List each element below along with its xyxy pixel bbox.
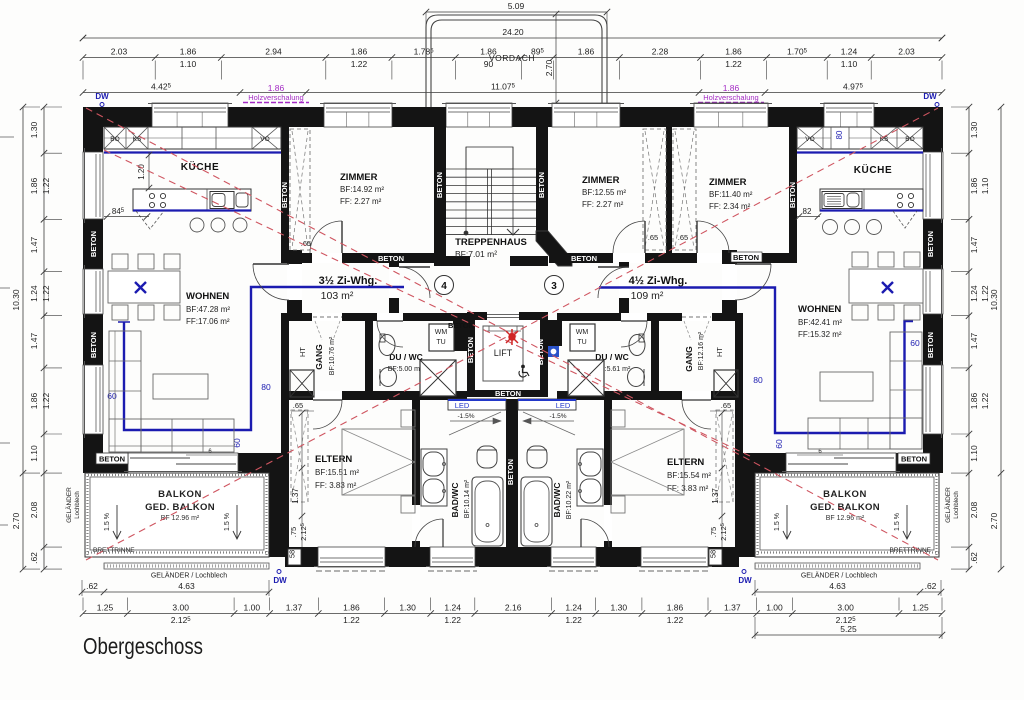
svg-text:HT: HT bbox=[715, 347, 724, 357]
svg-text:1.24: 1.24 bbox=[841, 47, 858, 57]
svg-text:BETON: BETON bbox=[571, 254, 597, 263]
svg-text:2.03: 2.03 bbox=[111, 47, 128, 57]
svg-text:1.22: 1.22 bbox=[444, 615, 461, 625]
svg-text:TU: TU bbox=[577, 339, 586, 346]
svg-text:1.37: 1.37 bbox=[724, 603, 741, 613]
svg-text:Obergeschoss: Obergeschoss bbox=[83, 633, 203, 659]
svg-text:BETON: BETON bbox=[926, 332, 935, 358]
svg-text:4: 4 bbox=[441, 281, 447, 292]
svg-text:1.86: 1.86 bbox=[29, 177, 39, 194]
svg-text:BAD/WC: BAD/WC bbox=[552, 483, 562, 518]
svg-text:2.08: 2.08 bbox=[969, 501, 979, 518]
svg-text:BETON: BETON bbox=[280, 182, 289, 208]
svg-text:1.24: 1.24 bbox=[444, 603, 461, 613]
svg-text:BF:42.41 m²: BF:42.41 m² bbox=[798, 318, 842, 327]
svg-text:BETON: BETON bbox=[495, 389, 521, 398]
svg-text:ZIMMER: ZIMMER bbox=[582, 175, 620, 186]
svg-text:5.09: 5.09 bbox=[508, 1, 525, 11]
svg-text:103 m²: 103 m² bbox=[321, 290, 354, 302]
svg-text:HT: HT bbox=[298, 347, 307, 357]
svg-text:BETON: BETON bbox=[99, 455, 125, 464]
svg-text:-1.5%: -1.5% bbox=[550, 413, 567, 420]
svg-text:BALKON: BALKON bbox=[823, 489, 867, 500]
svg-text:.65: .65 bbox=[721, 401, 731, 410]
svg-text:1.10: 1.10 bbox=[980, 177, 990, 194]
svg-text:1.5 %: 1.5 % bbox=[104, 513, 111, 531]
svg-text:GELÄNDER: GELÄNDER bbox=[944, 487, 952, 523]
svg-text:VORDACH: VORDACH bbox=[489, 53, 535, 63]
svg-text:BETON: BETON bbox=[89, 231, 98, 257]
svg-text:Lochblech: Lochblech bbox=[954, 491, 960, 518]
svg-text:1.47: 1.47 bbox=[29, 236, 39, 253]
svg-text:BETON: BETON bbox=[926, 231, 935, 257]
svg-text:BF:10.76 m²: BF:10.76 m² bbox=[329, 336, 336, 375]
svg-text:BO: BO bbox=[110, 136, 119, 143]
svg-text:1.86: 1.86 bbox=[343, 603, 360, 613]
svg-text:BF:14.92 m²: BF:14.92 m² bbox=[340, 185, 384, 194]
svg-text:3: 3 bbox=[551, 281, 557, 292]
svg-text:ZIMMER: ZIMMER bbox=[340, 172, 378, 183]
svg-text:1.47: 1.47 bbox=[969, 332, 979, 349]
svg-text:DU / WC: DU / WC bbox=[389, 352, 423, 362]
svg-text:BETON: BETON bbox=[506, 459, 515, 485]
svg-text:.75: .75 bbox=[289, 527, 298, 537]
svg-text:1.00: 1.00 bbox=[244, 603, 261, 613]
svg-text:1.22: 1.22 bbox=[565, 615, 582, 625]
svg-text:109 m²: 109 m² bbox=[631, 290, 664, 302]
svg-text:3.00: 3.00 bbox=[837, 603, 854, 613]
svg-text:2.16: 2.16 bbox=[505, 603, 522, 613]
svg-text:BETON: BETON bbox=[536, 339, 545, 365]
svg-text:BF:7.01 m²: BF:7.01 m² bbox=[455, 249, 497, 259]
svg-text:BF:47.28 m²: BF:47.28 m² bbox=[186, 305, 230, 314]
svg-text:1.24: 1.24 bbox=[565, 603, 582, 613]
svg-text:1.25: 1.25 bbox=[912, 603, 929, 613]
svg-text:1.37: 1.37 bbox=[291, 488, 300, 504]
svg-text:1.22: 1.22 bbox=[351, 59, 368, 69]
svg-text:FF:15.32 m²: FF:15.32 m² bbox=[798, 330, 842, 339]
svg-text:4.63: 4.63 bbox=[829, 581, 846, 591]
svg-text:1.37: 1.37 bbox=[711, 488, 720, 504]
svg-text:1.86: 1.86 bbox=[969, 392, 979, 409]
svg-text:BF:10.14 m²: BF:10.14 m² bbox=[464, 479, 471, 518]
svg-text:GELÄNDER: GELÄNDER bbox=[65, 487, 73, 523]
svg-text:3½ Zi-Whg.: 3½ Zi-Whg. bbox=[319, 275, 378, 287]
svg-text:Holzverschalung: Holzverschalung bbox=[703, 93, 758, 102]
svg-text:1.22: 1.22 bbox=[725, 59, 742, 69]
svg-text:BETON: BETON bbox=[537, 172, 546, 198]
svg-text:80: 80 bbox=[753, 375, 763, 385]
svg-text:WM: WM bbox=[435, 329, 448, 336]
svg-text:.62: .62 bbox=[925, 581, 937, 591]
svg-text:1.86: 1.86 bbox=[578, 47, 595, 57]
svg-text:1.5 %: 1.5 % bbox=[894, 513, 901, 531]
svg-text:-1.5%: -1.5% bbox=[458, 413, 475, 420]
svg-text:GANG: GANG bbox=[684, 346, 694, 372]
svg-text:3.00: 3.00 bbox=[172, 603, 189, 613]
svg-text:60: 60 bbox=[774, 439, 784, 449]
svg-text:BF:15.54 m²: BF:15.54 m² bbox=[667, 471, 711, 480]
svg-text:1.00: 1.00 bbox=[766, 603, 783, 613]
svg-text:1.10: 1.10 bbox=[969, 445, 979, 462]
svg-text:GANG: GANG bbox=[314, 344, 324, 370]
svg-text:BF 12.96 m²: BF 12.96 m² bbox=[161, 515, 200, 522]
svg-text:1.86: 1.86 bbox=[180, 47, 197, 57]
svg-text:1.86: 1.86 bbox=[351, 47, 368, 57]
svg-text:1.10: 1.10 bbox=[180, 59, 197, 69]
svg-text:BAD/WC: BAD/WC bbox=[450, 483, 460, 518]
svg-text:GELÄNDER / Lochblech: GELÄNDER / Lochblech bbox=[151, 572, 227, 580]
svg-text:1.22: 1.22 bbox=[41, 392, 51, 409]
svg-text:1.5 %: 1.5 % bbox=[774, 513, 781, 531]
svg-text:FF: 2.27 m²: FF: 2.27 m² bbox=[582, 200, 624, 209]
svg-text:.62: .62 bbox=[29, 552, 39, 564]
svg-text:BETON: BETON bbox=[901, 455, 927, 464]
svg-text:1.37: 1.37 bbox=[286, 603, 303, 613]
svg-text:2.28: 2.28 bbox=[652, 47, 669, 57]
svg-text:BETON: BETON bbox=[378, 254, 404, 263]
svg-text:WM: WM bbox=[576, 329, 589, 336]
svg-text:1.22: 1.22 bbox=[41, 285, 51, 302]
svg-text:FF: 2.34 m²: FF: 2.34 m² bbox=[709, 202, 751, 211]
svg-text:BETON: BETON bbox=[466, 337, 475, 363]
svg-text:BF:15.51 m²: BF:15.51 m² bbox=[315, 468, 359, 477]
svg-text:.65: .65 bbox=[648, 233, 658, 242]
svg-text:BETON: BETON bbox=[788, 182, 797, 208]
svg-text:80: 80 bbox=[261, 382, 271, 392]
svg-text:BF:11.40 m²: BF:11.40 m² bbox=[709, 190, 753, 199]
svg-text:1.30: 1.30 bbox=[969, 121, 979, 138]
svg-text:BETON: BETON bbox=[733, 253, 759, 262]
svg-text:Lochblech: Lochblech bbox=[75, 491, 81, 518]
svg-text:VO: VO bbox=[805, 136, 814, 143]
svg-text:FF: 3.83 m²: FF: 3.83 m² bbox=[667, 484, 709, 493]
svg-text:1.47: 1.47 bbox=[29, 332, 39, 349]
svg-text:4.63: 4.63 bbox=[178, 581, 195, 591]
svg-text:BF:12.16 m²: BF:12.16 m² bbox=[698, 331, 705, 370]
svg-text:1.86: 1.86 bbox=[969, 177, 979, 194]
svg-text:.62: .62 bbox=[969, 552, 979, 564]
svg-text:ELTERN: ELTERN bbox=[667, 457, 704, 468]
svg-text:2.08: 2.08 bbox=[29, 501, 39, 518]
svg-text:VO: VO bbox=[260, 136, 269, 143]
svg-text:WOHNEN: WOHNEN bbox=[186, 291, 229, 302]
svg-text:GED. BALKON: GED. BALKON bbox=[810, 502, 880, 513]
svg-text:2.70: 2.70 bbox=[11, 512, 21, 529]
svg-text:10.30: 10.30 bbox=[11, 289, 21, 311]
svg-text:58: 58 bbox=[288, 550, 297, 558]
svg-text:1.24: 1.24 bbox=[969, 285, 979, 302]
svg-text:1.5 %: 1.5 % bbox=[224, 513, 231, 531]
svg-text:Holzverschalung: Holzverschalung bbox=[248, 93, 303, 102]
svg-text:1.10: 1.10 bbox=[841, 59, 858, 69]
svg-text:DW: DW bbox=[738, 576, 752, 585]
svg-text:1.86: 1.86 bbox=[29, 392, 39, 409]
svg-text:80: 80 bbox=[835, 130, 844, 139]
svg-text:BETON: BETON bbox=[89, 332, 98, 358]
svg-text:1.22: 1.22 bbox=[980, 392, 990, 409]
svg-text:24.20: 24.20 bbox=[502, 27, 524, 37]
svg-text:1.47: 1.47 bbox=[969, 236, 979, 253]
svg-text:10.30: 10.30 bbox=[989, 289, 999, 311]
svg-text:60: 60 bbox=[910, 338, 920, 348]
svg-text:58: 58 bbox=[709, 550, 718, 558]
svg-text:2.70: 2.70 bbox=[989, 512, 999, 529]
svg-text:KÜCHE: KÜCHE bbox=[854, 163, 893, 176]
svg-text:4½ Zi-Whg.: 4½ Zi-Whg. bbox=[629, 275, 688, 287]
svg-text:1.86: 1.86 bbox=[667, 603, 684, 613]
svg-text:1.22: 1.22 bbox=[41, 177, 51, 194]
svg-text:FF:17.06 m²: FF:17.06 m² bbox=[186, 317, 230, 326]
svg-text:DW: DW bbox=[923, 92, 937, 101]
svg-text:GED. BALKON: GED. BALKON bbox=[145, 502, 215, 513]
svg-text:1.86: 1.86 bbox=[268, 83, 285, 93]
svg-text:2.94: 2.94 bbox=[265, 47, 282, 57]
svg-text:2.70: 2.70 bbox=[544, 59, 554, 76]
svg-text:.75: .75 bbox=[709, 527, 718, 537]
svg-text:BF:12.55 m²: BF:12.55 m² bbox=[582, 188, 626, 197]
svg-text:WOHNEN: WOHNEN bbox=[798, 304, 841, 315]
svg-text:1.22: 1.22 bbox=[343, 615, 360, 625]
svg-text:GELÄNDER / Lochblech: GELÄNDER / Lochblech bbox=[801, 572, 877, 580]
svg-text:BETON: BETON bbox=[448, 321, 474, 330]
svg-text:ELTERN: ELTERN bbox=[315, 454, 352, 465]
svg-text:.62: .62 bbox=[86, 581, 98, 591]
svg-text:1.30: 1.30 bbox=[399, 603, 416, 613]
svg-text:1.30: 1.30 bbox=[611, 603, 628, 613]
svg-text:TU: TU bbox=[436, 339, 445, 346]
svg-text:LED: LED bbox=[556, 401, 571, 410]
svg-text:1.10: 1.10 bbox=[29, 445, 39, 462]
svg-text:1.25: 1.25 bbox=[97, 603, 114, 613]
svg-text:BO: BO bbox=[905, 136, 914, 143]
svg-text:LIFT: LIFT bbox=[494, 348, 513, 358]
svg-text:BETON: BETON bbox=[435, 172, 444, 198]
svg-text:BF:10.22 m²: BF:10.22 m² bbox=[566, 480, 573, 519]
svg-text:FF: 2.27 m²: FF: 2.27 m² bbox=[340, 197, 382, 206]
svg-text:BF 12.96 m²: BF 12.96 m² bbox=[826, 515, 865, 522]
svg-text:82: 82 bbox=[803, 207, 812, 216]
svg-text:BALKON: BALKON bbox=[158, 489, 202, 500]
svg-text:DW: DW bbox=[273, 576, 287, 585]
svg-text:2.03: 2.03 bbox=[898, 47, 915, 57]
svg-text:5.25: 5.25 bbox=[840, 624, 857, 634]
svg-text:FF: 3.83 m²: FF: 3.83 m² bbox=[315, 481, 357, 490]
svg-text:1.86: 1.86 bbox=[725, 47, 742, 57]
svg-text:.65: .65 bbox=[293, 401, 303, 410]
svg-text:.65: .65 bbox=[678, 233, 688, 242]
svg-text:1.30: 1.30 bbox=[29, 121, 39, 138]
svg-text:TREPPENHAUS: TREPPENHAUS bbox=[455, 237, 527, 248]
svg-text:KÜCHE: KÜCHE bbox=[181, 160, 220, 173]
svg-text:1.86: 1.86 bbox=[723, 83, 740, 93]
svg-text:1.22: 1.22 bbox=[667, 615, 684, 625]
svg-text:ZIMMER: ZIMMER bbox=[709, 177, 747, 188]
svg-text:LED: LED bbox=[455, 401, 470, 410]
svg-text:DW: DW bbox=[95, 92, 109, 101]
svg-text:1.24: 1.24 bbox=[29, 285, 39, 302]
